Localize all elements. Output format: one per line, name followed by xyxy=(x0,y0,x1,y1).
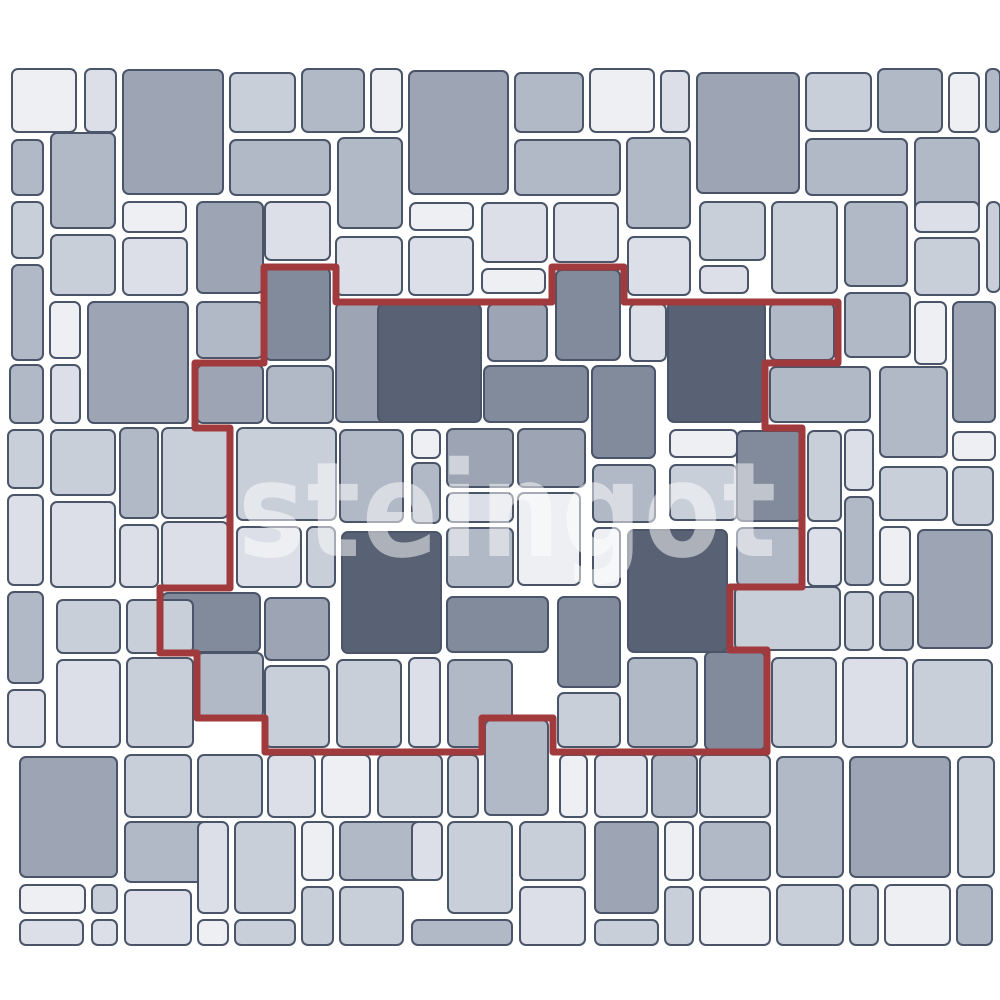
paving-tile xyxy=(448,822,512,913)
paving-tile xyxy=(918,530,992,648)
paving-tile xyxy=(520,887,585,945)
paving-tile xyxy=(412,920,512,945)
paving-tile xyxy=(197,653,263,718)
paving-tile xyxy=(230,73,295,132)
paving-tile xyxy=(51,365,80,423)
paving-tile xyxy=(12,140,43,195)
paving-tile xyxy=(302,887,333,945)
paving-tile xyxy=(850,885,878,945)
paving-tile xyxy=(336,237,402,295)
paving-tile xyxy=(123,238,187,295)
paving-tile xyxy=(322,755,370,817)
paving-tile xyxy=(628,658,697,747)
paving-tile xyxy=(772,658,836,747)
paving-tile xyxy=(953,467,993,525)
paving-tile xyxy=(880,367,947,457)
paving-tile xyxy=(198,920,228,945)
paving-tile xyxy=(340,887,403,945)
paving-tile xyxy=(198,822,228,913)
paving-tile xyxy=(661,71,689,132)
paving-tile xyxy=(665,822,693,880)
paving-tile xyxy=(378,304,481,422)
paving-tile xyxy=(485,720,548,815)
paving-tile xyxy=(987,202,1000,292)
paving-tile xyxy=(880,592,913,650)
paving-tile xyxy=(913,660,992,747)
paving-tile xyxy=(265,202,330,260)
paving-tile xyxy=(705,652,765,750)
paving-tile xyxy=(700,822,770,880)
paving-tile xyxy=(235,920,295,945)
paving-tile xyxy=(520,822,585,880)
paving-tile xyxy=(845,592,873,650)
paving-tile xyxy=(127,658,193,747)
paving-tile xyxy=(57,660,120,747)
paving-tile xyxy=(378,755,442,817)
paving-tile xyxy=(197,365,263,423)
paving-tile xyxy=(627,138,690,228)
paving-tile xyxy=(515,73,583,132)
paving-tile xyxy=(125,755,191,817)
paving-tile xyxy=(235,822,295,913)
paving-tile xyxy=(953,432,995,460)
paving-tile xyxy=(197,202,263,293)
paving-tile xyxy=(697,73,799,193)
paving-tile xyxy=(845,430,873,490)
paving-tile xyxy=(409,237,473,295)
paving-tile xyxy=(371,69,402,132)
paving-tile xyxy=(558,597,620,687)
paving-tile xyxy=(265,666,329,747)
paving-tile xyxy=(770,303,834,360)
paving-tile xyxy=(20,920,83,945)
paving-tile xyxy=(700,202,765,260)
paving-tile xyxy=(668,302,765,422)
paving-tile xyxy=(806,73,871,131)
paving-tile xyxy=(845,497,873,585)
paving-tile xyxy=(230,140,330,195)
paving-tile xyxy=(51,133,115,228)
paving-tile xyxy=(949,73,979,132)
paving-tile xyxy=(265,598,329,660)
paving-tile xyxy=(123,70,223,194)
paving-tile xyxy=(806,139,907,195)
paving-tile xyxy=(953,302,995,422)
paving-tile xyxy=(10,365,43,423)
paving-tile xyxy=(92,920,117,945)
paving-tile xyxy=(8,592,43,683)
paving-tile xyxy=(265,268,330,360)
paving-tile xyxy=(302,822,333,880)
paving-tile xyxy=(268,755,315,817)
paving-tile xyxy=(915,202,979,232)
paving-tile xyxy=(770,367,870,422)
paving-tile xyxy=(92,885,117,913)
paving-tile xyxy=(808,431,841,521)
paving-tile xyxy=(958,757,994,877)
paving-tile xyxy=(409,71,508,194)
paving-tile xyxy=(700,755,770,817)
paving-tile xyxy=(595,755,647,817)
paving-tile xyxy=(85,69,116,132)
paving-tile xyxy=(338,138,402,228)
paving-tile xyxy=(12,202,43,258)
paving-tile xyxy=(560,755,587,817)
paving-tile xyxy=(482,203,547,262)
paving-tile xyxy=(665,887,693,945)
paving-tile xyxy=(630,304,666,361)
paving-tile xyxy=(957,885,992,945)
paving-tile xyxy=(595,920,658,945)
paving-tile xyxy=(412,822,442,880)
paving-tile xyxy=(880,527,910,585)
paving-tile xyxy=(448,755,478,817)
paving-tile xyxy=(51,430,115,495)
paving-tile xyxy=(700,887,770,945)
paving-tile xyxy=(777,885,843,945)
paving-tile xyxy=(162,428,228,518)
paving-tile xyxy=(772,202,837,293)
paving-pattern-canvas: steingot xyxy=(0,0,1000,1000)
paving-tile xyxy=(808,528,841,586)
paving-tile xyxy=(777,757,843,877)
paving-tile xyxy=(700,266,748,293)
paving-tile xyxy=(337,660,401,747)
paving-tile xyxy=(8,495,43,585)
paving-tile xyxy=(735,587,840,650)
paving-tile xyxy=(409,658,440,747)
paving-tile xyxy=(12,265,43,360)
watermark-text: steingot xyxy=(238,434,778,588)
paving-tile xyxy=(120,428,158,518)
paving-tile xyxy=(197,302,263,358)
paving-tile xyxy=(12,69,76,132)
paving-tile xyxy=(558,693,620,747)
paving-tile xyxy=(845,202,907,286)
paving-tile xyxy=(986,69,1000,132)
paving-tile xyxy=(556,270,620,360)
paving-tile xyxy=(50,302,80,358)
paving-tile xyxy=(302,69,364,132)
paving-tile xyxy=(482,269,545,293)
paving-tile xyxy=(652,755,697,817)
paving-tile xyxy=(554,203,618,262)
paving-tile xyxy=(198,755,262,817)
paving-tile xyxy=(447,597,548,652)
paving-tile xyxy=(8,430,43,488)
paving-tile xyxy=(20,757,117,877)
paving-tile xyxy=(880,467,947,520)
paving-tile xyxy=(878,69,942,132)
paving-tile xyxy=(590,69,654,132)
paving-tile xyxy=(162,522,228,588)
paving-tile xyxy=(267,366,333,423)
paving-tile xyxy=(410,203,473,230)
paving-tile xyxy=(20,885,85,913)
paving-tile xyxy=(51,235,115,295)
paving-tile xyxy=(125,890,191,945)
paving-tile xyxy=(120,525,158,587)
paving-tile xyxy=(88,302,188,423)
paving-tile xyxy=(484,366,588,422)
paving-tile xyxy=(8,690,45,747)
paving-tile xyxy=(595,822,658,913)
paving-tile xyxy=(51,502,115,587)
paving-tile xyxy=(845,293,910,357)
paving-tile xyxy=(628,237,690,295)
paving-tile xyxy=(850,757,950,877)
paving-tile xyxy=(123,202,186,232)
paving-tile xyxy=(57,600,120,653)
paving-tile xyxy=(515,140,620,195)
paving-tile xyxy=(885,885,950,945)
paving-tile xyxy=(915,238,979,295)
paving-layout-image: steingot xyxy=(0,0,1000,1000)
paving-tile xyxy=(843,658,907,747)
paving-tile xyxy=(488,304,547,361)
paving-tile xyxy=(915,302,946,364)
